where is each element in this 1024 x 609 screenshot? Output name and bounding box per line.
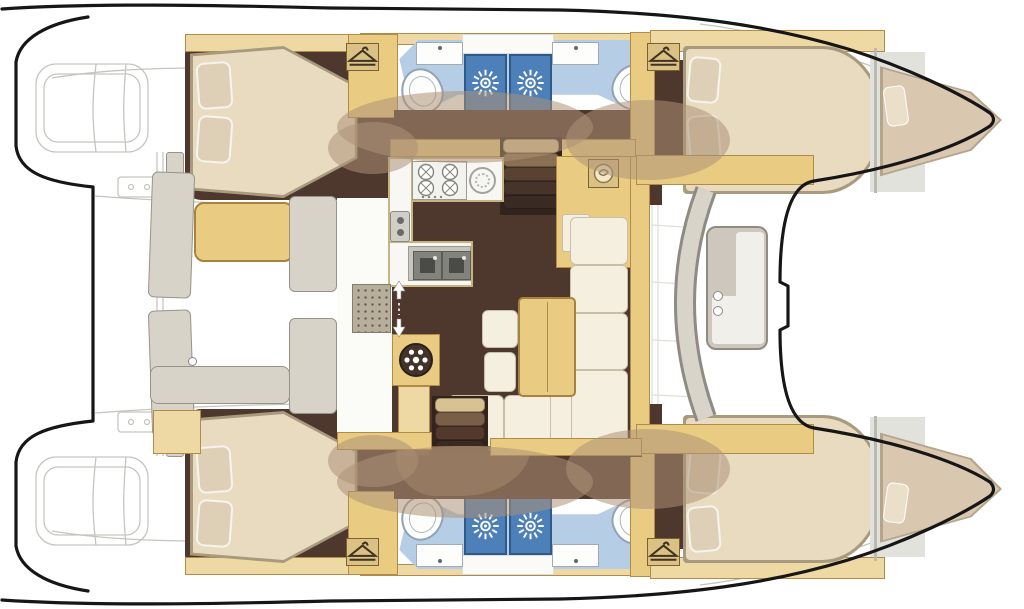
table-top: [712, 296, 764, 344]
helm-wheel-icon: [393, 335, 439, 385]
pillow: [686, 505, 722, 554]
headroom-shade: [328, 435, 418, 487]
forward-bench: [685, 190, 706, 418]
dinghy-outline: [36, 64, 148, 152]
sofa-cushion: [570, 265, 628, 313]
four-burner-stove: [412, 161, 467, 200]
cockpit-seat: [289, 318, 337, 414]
cockpit-table: [150, 366, 290, 404]
clothes-hanger-icon: [347, 44, 378, 70]
headroom-shade: [566, 100, 730, 180]
pillow: [195, 499, 233, 548]
washbasin: [416, 544, 463, 567]
cockpit-bench: [194, 202, 294, 262]
bow-bulkhead: [874, 416, 877, 561]
clothes-hanger-icon: [648, 539, 679, 565]
cockpit-seat: [289, 196, 337, 292]
wardrobe-tile: [647, 538, 680, 566]
round-hob: [469, 167, 496, 194]
up-down-arrows-icon: [390, 280, 408, 338]
cupholder: [713, 291, 723, 301]
shower-top-counter: [462, 555, 554, 575]
wheel-locker: [392, 334, 440, 386]
washbasin: [416, 42, 463, 65]
pillow: [195, 115, 233, 164]
clothes-hanger-icon: [648, 44, 679, 70]
dinghy-outline: [36, 457, 148, 545]
cockpit-locker: [153, 410, 201, 454]
stove-burner-icon: [413, 162, 466, 199]
forward-bulkhead: [630, 156, 650, 454]
double-sink: [408, 246, 471, 281]
cupholder: [713, 306, 723, 316]
stool: [482, 310, 518, 348]
stool: [484, 352, 516, 392]
washbasin: [552, 42, 599, 65]
shower-top-counter: [462, 34, 554, 54]
bow-bulkhead: [874, 48, 877, 193]
headroom-shade: [328, 122, 418, 174]
wardrobe-tile: [346, 43, 379, 71]
wardrobe-tile: [346, 538, 379, 566]
pillow: [195, 61, 233, 110]
headroom-shade: [566, 429, 730, 509]
washbasin: [552, 544, 599, 567]
dining-table: [518, 297, 576, 397]
catamaran-floorplan: [0, 0, 1024, 609]
oven: [390, 211, 410, 242]
pillow: [686, 56, 722, 105]
companionway-arrows: [390, 280, 408, 338]
floor-grating: [352, 284, 391, 333]
stern-platform-outline: [16, 17, 93, 591]
pillow: [195, 445, 233, 494]
forward-bench-edge: [685, 190, 706, 418]
table-leg-knob: [188, 357, 197, 366]
companionway-stairs: [432, 396, 488, 452]
sofa-cushion: [570, 217, 628, 265]
clothes-hanger-icon: [347, 539, 378, 565]
cockpit-side-panel: [148, 171, 195, 298]
wardrobe-tile: [647, 43, 680, 71]
sofa-cushion: [570, 313, 628, 370]
